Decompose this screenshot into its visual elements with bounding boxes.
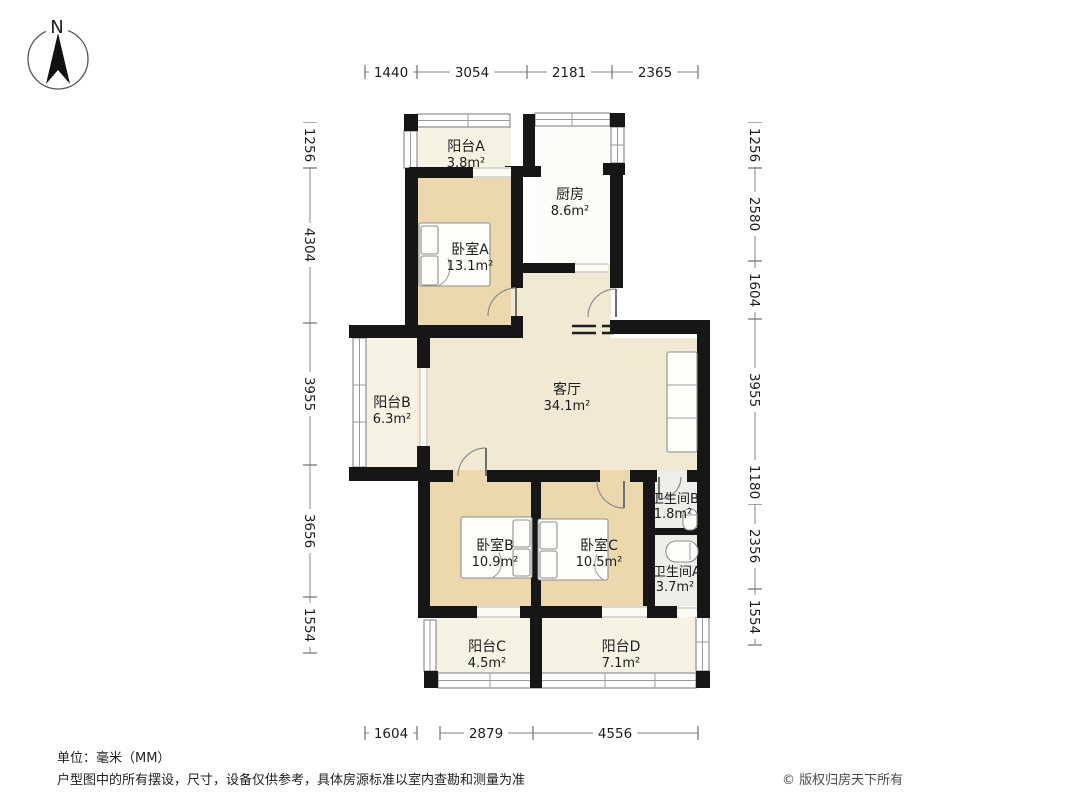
floorplan-page: N bbox=[0, 0, 1066, 800]
balcony-c-opening bbox=[477, 606, 520, 618]
balcony-d-right-window bbox=[696, 613, 709, 671]
bath-a-area: 3.7m² bbox=[656, 580, 695, 595]
dim-right-3: 1604 bbox=[746, 273, 762, 307]
bedroom-b-label: 卧室B bbox=[476, 537, 514, 554]
dim-bottom-3: 4556 bbox=[598, 726, 632, 742]
washbasin-icon bbox=[666, 541, 698, 562]
dimension-chain-right: 1256 2580 1604 3955 1180 2356 1554 bbox=[746, 123, 763, 645]
dim-right-2: 2580 bbox=[746, 197, 762, 231]
dim-left-1: 1256 bbox=[301, 128, 317, 162]
balcony-c-left-window bbox=[424, 620, 436, 671]
balcony-d-label: 阳台D bbox=[602, 639, 641, 655]
sofa bbox=[667, 352, 697, 452]
balcony-d-area: 7.1m² bbox=[602, 656, 641, 671]
balcony-b-label: 阳台B bbox=[373, 395, 411, 411]
floorplan-canvas: N bbox=[0, 0, 1066, 800]
bedroom-b-area: 10.9m² bbox=[472, 555, 519, 570]
balcony-c-area: 4.5m² bbox=[468, 656, 507, 671]
dimension-chain-left: 1256 4304 3955 3656 1554 bbox=[301, 123, 318, 653]
balcony-d-step-opening bbox=[677, 607, 697, 617]
balcony-c-label: 阳台C bbox=[468, 639, 506, 655]
living-room-area: 34.1m² bbox=[544, 399, 591, 414]
bath-b-label: 卫生间B bbox=[651, 492, 699, 507]
bedroom-c-label: 卧室C bbox=[580, 537, 618, 554]
balcony-a-label: 阳台A bbox=[447, 139, 485, 155]
dim-top-3: 2181 bbox=[552, 65, 586, 81]
balcony-a-left-window bbox=[404, 131, 417, 168]
bedroom-a-label: 卧室A bbox=[451, 241, 489, 258]
dim-right-5: 1180 bbox=[746, 465, 762, 499]
kitchen-door-opening bbox=[575, 263, 608, 273]
dimension-chain-top: 1440 3054 2181 2365 bbox=[365, 64, 698, 81]
dim-bottom-1: 1604 bbox=[374, 726, 408, 742]
kitchen-area: 8.6m² bbox=[551, 204, 590, 219]
balcony-b-opening bbox=[419, 368, 428, 446]
kitchen-right-window bbox=[611, 127, 624, 163]
unit-note: 单位：毫米（MM） bbox=[57, 750, 170, 766]
kitchen-label: 厨房 bbox=[556, 187, 584, 203]
balcony-d-opening bbox=[602, 606, 647, 618]
footer: 单位：毫米（MM） 户型图中的所有摆设，尺寸，设备仅供参考，具体房源标准以室内查… bbox=[57, 750, 903, 788]
bedroom-a-area: 13.1m² bbox=[447, 259, 494, 274]
dim-top-1: 1440 bbox=[374, 65, 408, 81]
compass: N bbox=[28, 17, 88, 89]
bath-a-label: 卫生间A bbox=[653, 565, 701, 580]
dim-top-4: 2365 bbox=[638, 65, 672, 81]
dim-right-4: 3955 bbox=[746, 373, 762, 407]
disclaimer-text: 户型图中的所有摆设，尺寸，设备仅供参考，具体房源标准以室内查勘和测量为准 bbox=[57, 772, 525, 788]
bedroom-c-area: 10.5m² bbox=[576, 555, 623, 570]
copyright-text: © 版权归房天下所有 bbox=[782, 772, 903, 788]
kitchen-top-window bbox=[535, 113, 610, 126]
dim-left-2: 4304 bbox=[301, 228, 317, 262]
compass-needle-icon bbox=[46, 33, 70, 84]
dimension-chain-bottom: 1604 2879 4556 bbox=[365, 725, 698, 742]
bath-b-area: 1.8m² bbox=[654, 507, 693, 522]
dim-left-4: 3656 bbox=[301, 514, 317, 548]
living-room-label: 客厅 bbox=[553, 381, 581, 398]
bottom-window bbox=[438, 673, 696, 688]
dim-left-3: 3955 bbox=[301, 377, 317, 411]
dim-bottom-2: 2879 bbox=[469, 726, 503, 742]
dim-left-5: 1554 bbox=[301, 608, 317, 642]
balcony-b-left-window bbox=[353, 338, 366, 467]
dim-right-6: 2356 bbox=[746, 529, 762, 563]
balcony-a-top-window bbox=[417, 114, 510, 127]
dim-right-7: 1554 bbox=[746, 600, 762, 634]
compass-north-label: N bbox=[50, 17, 63, 38]
balcony-a-area: 3.8m² bbox=[447, 156, 486, 171]
dim-right-1: 1256 bbox=[746, 128, 762, 162]
dim-top-2: 3054 bbox=[455, 65, 489, 81]
balcony-b-area: 6.3m² bbox=[373, 412, 412, 427]
